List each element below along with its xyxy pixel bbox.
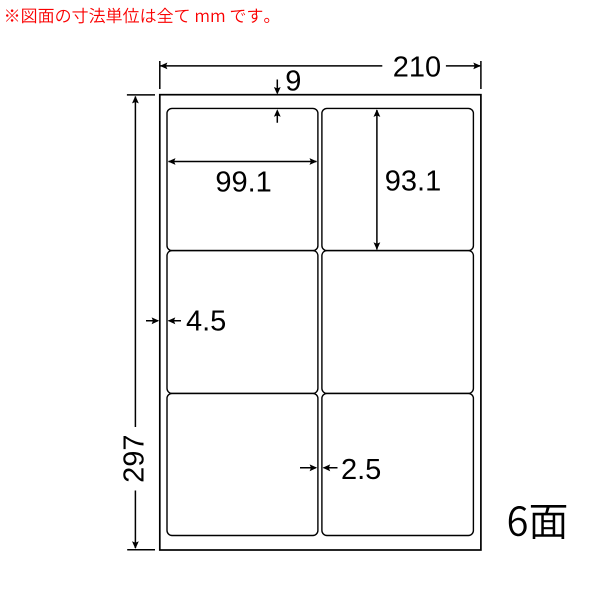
svg-text:4.5: 4.5 <box>186 306 226 338</box>
svg-text:210: 210 <box>393 52 441 84</box>
svg-text:297: 297 <box>119 435 151 483</box>
svg-text:99.1: 99.1 <box>215 166 271 198</box>
svg-text:93.1: 93.1 <box>385 166 441 198</box>
svg-text:2.5: 2.5 <box>341 454 381 486</box>
svg-text:9: 9 <box>285 65 301 97</box>
